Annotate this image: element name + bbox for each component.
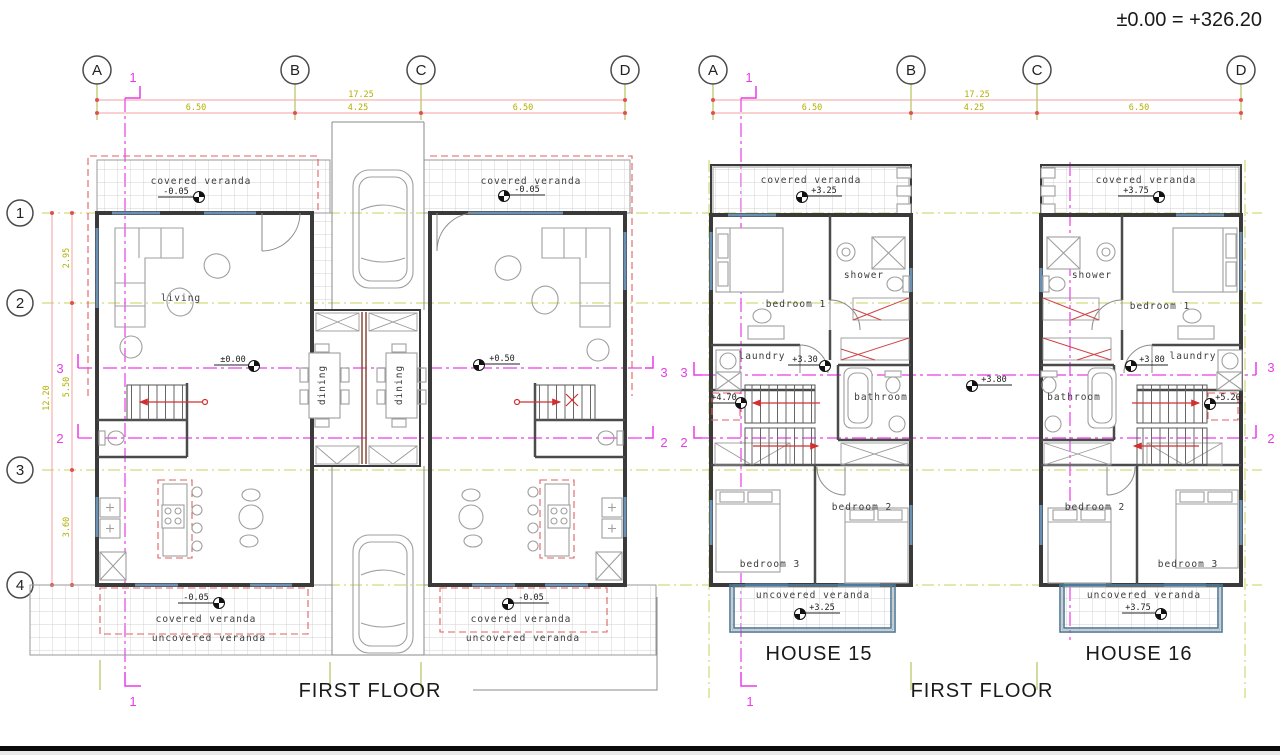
veranda-a-bottom-label: covered veranda [156,614,257,625]
grid-row-4: 4 [16,577,24,594]
bed-2-15 [845,508,908,583]
between-level: +3.80 [981,375,1007,385]
bedroom1-16-label: bedroom 1 [1130,301,1190,312]
upper-plan-grid: A B C D [699,56,1255,84]
section-2-left: 2 [56,431,63,446]
veranda-15-top-level: +3.25 [811,186,837,196]
bedroom2-15-label: bedroom 2 [832,502,892,513]
vdim-total: 12.20 [42,385,52,411]
veranda-16-top-label: covered veranda [1096,175,1197,186]
hall-level-15: +3.30 [792,355,818,365]
shower-room-16 [1043,237,1115,292]
veranda-16-top-level: +3.75 [1123,186,1149,196]
grid-col-b2: B [906,62,916,79]
laundry-16-label: laundry [1169,351,1216,362]
bed-2-16 [1048,508,1111,583]
bed-1-15 [716,228,783,292]
floor-level-b: +0.50 [489,354,515,364]
veranda-b-bottom-level: -0.05 [518,593,544,603]
section-1-top-left: 1 [129,70,136,85]
house-16-name: HOUSE 16 [1086,643,1193,665]
shower-15-label: shower [844,270,884,281]
dining-label-a: dining [317,365,328,405]
bed-1-16 [1173,228,1237,292]
vdim-seg-12: 2.95 [62,248,72,268]
shower-16-label: shower [1072,270,1112,281]
uncovered-16-level: +3.75 [1125,603,1151,613]
dim-seg-cd-right: 6.50 [1129,103,1149,113]
section-2-mid-a: 2 [660,435,667,450]
door-arc [262,213,300,251]
stair-level-16: +5.20 [1215,393,1241,403]
veranda-b-top-level: -0.05 [514,185,540,195]
laundry-16 [1217,350,1242,390]
veranda-b-bottom-label: covered veranda [471,614,572,625]
dining-label-b: dining [394,365,405,405]
veranda-15-top-label: covered veranda [761,175,862,186]
desk-16 [1178,309,1214,339]
bed-3-16 [1176,490,1238,568]
bedroom1-15-label: bedroom 1 [766,299,826,310]
uncovered-a-label: uncovered veranda [152,633,266,644]
bottom-frame-bar [0,746,1280,751]
dim-seg-ab: 6.50 [186,103,206,113]
veranda-tiles-a-side [312,213,332,310]
section-3-left: 3 [56,361,63,376]
veranda-a-bottom-level: -0.05 [183,593,209,603]
living-label: living [161,293,201,304]
section-2-mid-b: 2 [680,435,687,450]
house-16: covered veranda +3.75 bedroom 1 shower l… [1041,165,1242,665]
dim-seg-cd: 6.50 [513,103,533,113]
section-2-right: 2 [1267,431,1274,446]
kitchen-unit-b [459,480,622,580]
grid-col-c: C [416,62,427,79]
ground-plan: dining dining covered veranda -0.05 livi… [30,122,657,702]
house-15: covered veranda +3.25 bedroom 1 shower l… [710,165,911,665]
veranda-a-top-label: covered veranda [151,176,252,187]
uncovered-15-label: uncovered veranda [756,590,870,601]
datum-note: ±0.00 = +326.20 [1116,9,1262,31]
section-3-right: 3 [1267,360,1274,375]
grid-col-d2: D [1236,62,1247,79]
dim-seg-ab-right: 6.50 [802,103,822,113]
uncovered-16-label: uncovered veranda [1087,590,1201,601]
grid-row-2: 2 [16,295,24,312]
car-top [353,170,413,288]
section-3-mid-a: 3 [660,365,667,380]
house-15-name: HOUSE 15 [766,643,873,665]
bathroom-16-label: bathroom [1047,392,1101,403]
dim-total-right: 17.25 [964,90,990,100]
grid-col-b: B [290,62,300,79]
dim-seg-bc-right: 4.25 [964,103,984,113]
upper-plan-title: FIRST FLOOR [911,680,1054,702]
grid-row-3: 3 [16,462,24,479]
grid-row-1: 1 [16,205,24,222]
desk-15 [748,309,784,339]
floor-plan-drawing: ±0.00 = +326.20 A B C D 1 2 3 4 17.25 6.… [0,0,1280,755]
vdim-seg-23: 5.50 [62,377,72,397]
bedroom3-15-label: bedroom 3 [740,559,800,570]
laundry-15 [716,350,741,390]
shower-room-15 [837,237,909,292]
unit-b-walls [430,213,625,585]
grid-col-d: D [620,62,631,79]
stairs-16-upper [1137,385,1207,423]
grid-col-a: A [92,62,102,79]
section-1-bottom-left: 1 [129,694,136,709]
stairs-15-upper [745,385,815,423]
dim-seg-bc: 4.25 [348,103,368,113]
sofa-unit-b [492,228,610,361]
door-arc [437,213,475,251]
stair-level-15: +4.70 [711,393,737,403]
bedroom2-16-label: bedroom 2 [1065,502,1125,513]
bathroom-15-label: bathroom [854,392,908,403]
veranda-a-top-level: -0.05 [163,187,189,197]
uncovered-b-label: uncovered veranda [466,633,580,644]
ground-plan-title: FIRST FLOOR [299,680,442,702]
dim-total: 17.25 [348,90,374,100]
vdim-seg-34: 3.60 [62,517,72,537]
laundry-15-label: laundry [738,351,785,362]
grid-col-c2: C [1032,62,1043,79]
bottom-frame-strip [0,751,1280,755]
bedroom3-16-label: bedroom 3 [1158,559,1218,570]
section-1-bottom-right: 1 [746,694,753,709]
hall-level-16: +3.80 [1139,355,1165,365]
section-1-top-right: 1 [745,70,752,85]
grid-col-a2: A [708,62,718,79]
drawing-canvas: ±0.00 = +326.20 A B C D 1 2 3 4 17.25 6.… [0,0,1280,755]
upper-plan: covered veranda +3.25 bedroom 1 shower l… [710,165,1242,702]
section-3-mid-b: 3 [680,365,687,380]
uncovered-15-level: +3.25 [809,603,835,613]
car-bottom [353,535,413,653]
floor-level-a: ±0.00 [220,355,246,365]
